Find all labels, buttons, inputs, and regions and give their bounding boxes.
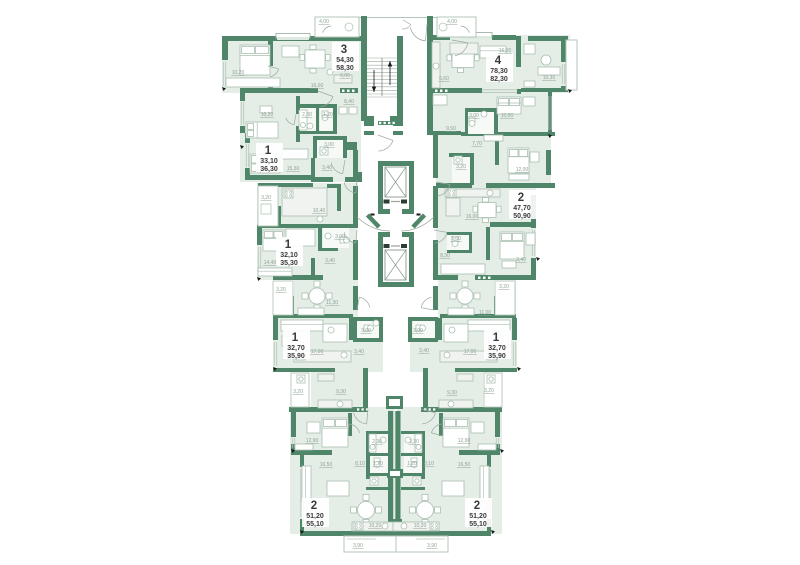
svg-text:32,70: 32,70: [488, 345, 506, 352]
svg-text:1: 1: [285, 239, 292, 251]
svg-text:3,00: 3,00: [413, 328, 423, 334]
svg-text:17,00: 17,00: [311, 349, 324, 355]
svg-text:11,00: 11,00: [479, 310, 491, 316]
svg-text:2: 2: [518, 192, 524, 204]
svg-text:10,20: 10,20: [414, 523, 427, 529]
svg-text:33,10: 33,10: [260, 158, 278, 165]
svg-text:10,00: 10,00: [501, 113, 514, 119]
svg-text:3,20: 3,20: [456, 164, 466, 170]
svg-text:3,00: 3,00: [324, 142, 334, 148]
svg-text:16,00: 16,00: [311, 83, 324, 89]
svg-text:12,90: 12,90: [458, 438, 471, 444]
svg-text:10,20: 10,20: [232, 70, 245, 76]
svg-text:3: 3: [341, 44, 347, 56]
svg-text:8,10: 8,10: [424, 461, 434, 467]
svg-text:3,20: 3,20: [261, 195, 271, 201]
svg-text:12,90: 12,90: [306, 438, 319, 444]
svg-text:2: 2: [311, 500, 317, 512]
svg-text:15,30: 15,30: [287, 166, 300, 172]
svg-text:3,20: 3,20: [293, 389, 303, 395]
svg-text:10,20: 10,20: [261, 112, 274, 118]
svg-text:54,30: 54,30: [336, 57, 354, 64]
svg-text:1,20: 1,20: [323, 112, 333, 118]
svg-text:10,20: 10,20: [369, 523, 382, 529]
svg-text:3,20: 3,20: [276, 287, 286, 293]
svg-text:9,30: 9,30: [447, 390, 457, 396]
svg-text:8,40: 8,40: [344, 99, 354, 105]
svg-text:3,00: 3,00: [335, 234, 345, 240]
svg-text:2,30: 2,30: [372, 439, 382, 445]
svg-text:2,30: 2,30: [302, 112, 312, 118]
svg-text:16,50: 16,50: [458, 462, 471, 468]
svg-text:10,40: 10,40: [313, 208, 326, 214]
svg-text:16,00: 16,00: [466, 214, 479, 220]
svg-text:3,00: 3,00: [469, 113, 479, 119]
svg-text:2,30: 2,30: [409, 439, 419, 445]
svg-text:3,20: 3,20: [484, 388, 494, 394]
svg-text:1: 1: [265, 145, 272, 157]
svg-text:9,50: 9,50: [446, 126, 456, 132]
svg-text:4: 4: [495, 55, 502, 67]
svg-text:12,00: 12,00: [516, 167, 529, 173]
svg-text:1,20: 1,20: [373, 461, 383, 467]
svg-text:7,70: 7,70: [472, 141, 482, 147]
svg-text:11,30: 11,30: [326, 300, 338, 306]
svg-text:17,00: 17,00: [464, 349, 477, 355]
svg-text:78,30: 78,30: [490, 68, 508, 75]
svg-text:51,20: 51,20: [306, 513, 324, 520]
svg-text:58,30: 58,30: [336, 65, 354, 72]
svg-text:55,10: 55,10: [306, 521, 324, 528]
svg-text:3,40: 3,40: [322, 165, 332, 171]
svg-text:4,00: 4,00: [447, 19, 457, 25]
svg-text:4,00: 4,00: [319, 19, 329, 25]
svg-text:3,40: 3,40: [419, 348, 429, 354]
svg-text:2: 2: [474, 500, 480, 512]
svg-text:51,20: 51,20: [469, 513, 487, 520]
svg-text:3,00: 3,00: [451, 236, 461, 242]
svg-text:36,30: 36,30: [260, 166, 278, 173]
svg-text:3,40: 3,40: [325, 258, 335, 264]
svg-text:55,10: 55,10: [469, 521, 487, 528]
svg-text:35,90: 35,90: [488, 353, 506, 360]
svg-text:9,30: 9,30: [336, 389, 346, 395]
svg-text:3,90: 3,90: [353, 543, 363, 549]
svg-text:16,00: 16,00: [499, 48, 512, 54]
svg-text:10,30: 10,30: [543, 75, 556, 81]
svg-text:32,10: 32,10: [280, 252, 298, 259]
svg-text:14,40: 14,40: [264, 260, 277, 266]
svg-text:6,60: 6,60: [439, 76, 449, 82]
svg-text:16,50: 16,50: [320, 462, 333, 468]
svg-text:8,30: 8,30: [440, 253, 450, 259]
svg-text:6,00: 6,00: [340, 73, 350, 79]
svg-text:32,70: 32,70: [287, 345, 305, 352]
svg-text:50,90: 50,90: [513, 213, 531, 220]
svg-text:3,00: 3,00: [361, 328, 371, 334]
svg-text:1: 1: [493, 332, 500, 344]
svg-text:35,90: 35,90: [287, 353, 305, 360]
svg-text:1,20: 1,20: [407, 461, 417, 467]
svg-text:35,30: 35,30: [280, 260, 298, 267]
svg-text:3,40: 3,40: [516, 257, 526, 263]
svg-text:1: 1: [292, 332, 299, 344]
svg-text:3,20: 3,20: [499, 284, 509, 290]
svg-text:3,90: 3,90: [427, 543, 437, 549]
svg-text:3,40: 3,40: [354, 349, 364, 355]
svg-text:47,70: 47,70: [513, 205, 531, 212]
svg-text:82,30: 82,30: [490, 76, 508, 83]
svg-text:8,10: 8,10: [355, 461, 365, 467]
